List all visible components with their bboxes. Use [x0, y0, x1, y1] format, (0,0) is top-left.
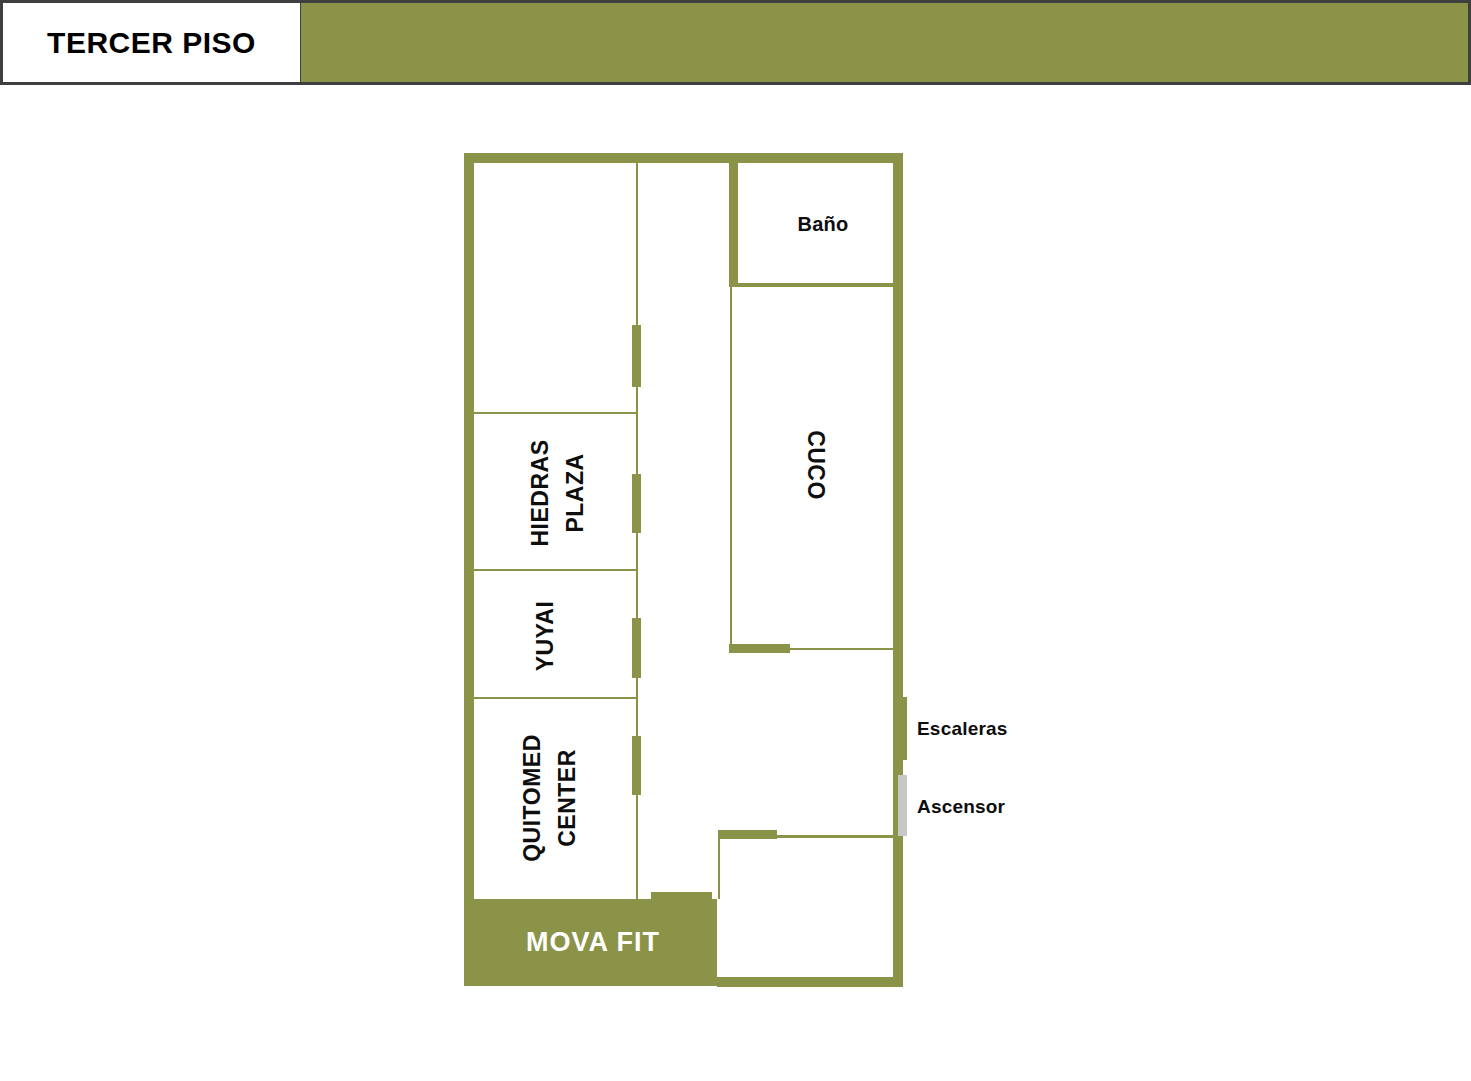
outer-wall-right [893, 153, 903, 987]
divider-hiedras-yuyai [474, 569, 636, 571]
room-label-hiedras-plaza-line1: HIEDRAS [523, 439, 558, 546]
cuco-wall-left [730, 287, 732, 648]
door-marker-top-room [632, 325, 641, 387]
elevator-label: Ascensor [917, 796, 1005, 818]
stairs-label: Escaleras [917, 718, 1008, 740]
lower-room-wall-left [718, 838, 720, 899]
stairs-marker [894, 697, 907, 760]
door-marker-quitomed [632, 736, 641, 795]
floor-title-box: TERCER PISO [0, 0, 303, 85]
elevator-marker [898, 775, 907, 836]
outer-wall-left [464, 153, 474, 899]
mova-fit-door-marker [651, 892, 712, 900]
room-label-hiedras-plaza-line2: PLAZA [558, 439, 593, 546]
room-label-bano: Baño [798, 213, 849, 236]
bano-wall-left [729, 163, 738, 287]
door-marker-hiedras [632, 474, 641, 533]
page-title: TERCER PISO [47, 26, 256, 60]
room-label-mova-fit: MOVA FIT [526, 927, 660, 958]
lower-room-door-marker [718, 830, 777, 839]
room-label-yuyai: YUYAI [528, 601, 563, 672]
room-label-quitomed-center: QUITOMED CENTER [515, 734, 585, 862]
divider-yuyai-quitomed [474, 697, 636, 699]
room-label-hiedras-plaza: HIEDRAS PLAZA [523, 439, 593, 546]
room-label-quitomed-center-line1: QUITOMED [515, 734, 550, 862]
bano-wall-bottom [729, 283, 903, 287]
door-marker-yuyai [632, 618, 641, 678]
room-label-cuco: CUCO [798, 430, 833, 500]
outer-wall-top [464, 153, 903, 163]
header-accent-bar [301, 0, 1471, 85]
room-label-quitomed-center-line2: CENTER [550, 734, 585, 862]
divider-toproom-hiedras [474, 412, 636, 414]
cuco-door-marker [729, 644, 790, 653]
lower-room-wall-bottom [717, 977, 903, 987]
floor-plan-page: TERCER PISO Baño CUCO HIEDRAS PLAZA YUYA… [0, 0, 1471, 1081]
